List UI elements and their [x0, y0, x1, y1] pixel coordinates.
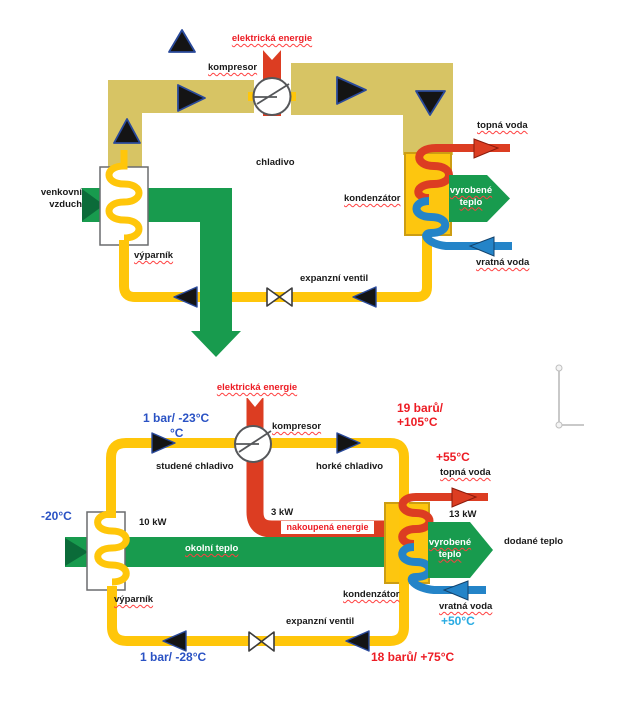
condenser-state-label: 18 barů/ +75°C [371, 650, 454, 664]
purchased-energy-label: nakoupená energie [281, 521, 374, 534]
heat-arrow-down-icon [191, 331, 241, 357]
delivered-heat-label: dodané teplo [504, 536, 563, 548]
diagram-artwork [0, 0, 624, 707]
discharge-state-label: 19 barů/ +105°C [397, 401, 443, 429]
electric-power-label: 3 kW [271, 507, 293, 519]
flow-arrow-right-icon [337, 433, 360, 453]
output-power-label: 13 kW [449, 509, 476, 521]
outdoor-temp-label: -20°C [41, 509, 72, 523]
return-water-arrow-icon [470, 237, 494, 256]
return-water-label: vratná voda [439, 601, 492, 613]
condenser-label: kondenzátor [344, 193, 400, 205]
produced-heat-label: vyrobené teplo [426, 537, 474, 560]
flow-arrow-left-icon [353, 287, 376, 307]
compressor-label: kompresor [272, 421, 321, 433]
compressor-symbol [235, 426, 271, 462]
expansion-valve-label: expanzní ventil [300, 273, 368, 285]
suction-state-label: 1 bar/ -23°C [143, 411, 209, 425]
expansion-valve-label: expanzní ventil [286, 616, 354, 628]
hot-refrigerant-label: horké chladivo [316, 461, 383, 473]
heating-water-arrow-icon [452, 488, 476, 507]
expansion-valve-icon [267, 288, 292, 306]
low-state-label: 1 bar/ -28°C [140, 650, 206, 664]
outdoor-air-label: venkovní vzduch [26, 187, 82, 210]
electric-energy-label: elektrická energie [231, 33, 313, 45]
suction-state-label-2: °C [170, 426, 183, 440]
heating-water-arrow-icon [474, 139, 498, 158]
flow-arrow-left-icon [163, 631, 186, 651]
heating-water-label: topná voda [440, 467, 491, 479]
compressor-symbol [248, 78, 296, 115]
heat-pump-schematic: elektrická energie kompresor chladivo ve… [0, 0, 624, 707]
refrigerant-label: chladivo [256, 157, 295, 169]
return-temp-label: +50°C [441, 614, 475, 628]
refrigerant-pipe [124, 236, 427, 297]
ambient-power-label: 10 kW [139, 517, 166, 529]
return-water-arrow-icon [444, 581, 468, 600]
cold-refrigerant-label: studené chladivo [156, 461, 234, 473]
evaporator-label: výparník [114, 594, 153, 606]
return-water-label: vratná voda [476, 257, 529, 269]
flow-arrow-left-icon [174, 287, 197, 307]
produced-heat-label: vyrobené teplo [449, 185, 493, 208]
flow-arrow-up-float-icon [169, 30, 195, 52]
evaporator-label: výparník [134, 250, 173, 262]
electric-energy-label: elektrická energie [216, 382, 298, 394]
ambient-heat-label: okolní teplo [185, 543, 238, 555]
top-diagram [82, 30, 512, 357]
supply-temp-label: +55°C [436, 450, 470, 464]
compressor-label: kompresor [208, 62, 257, 74]
connector-line-artifact [556, 365, 584, 428]
bottom-diagram [65, 365, 584, 651]
expansion-valve-icon [249, 632, 274, 651]
heating-water-label: topná voda [477, 120, 528, 132]
condenser-label: kondenzátor [343, 589, 399, 601]
flow-arrow-left-icon [346, 631, 369, 651]
